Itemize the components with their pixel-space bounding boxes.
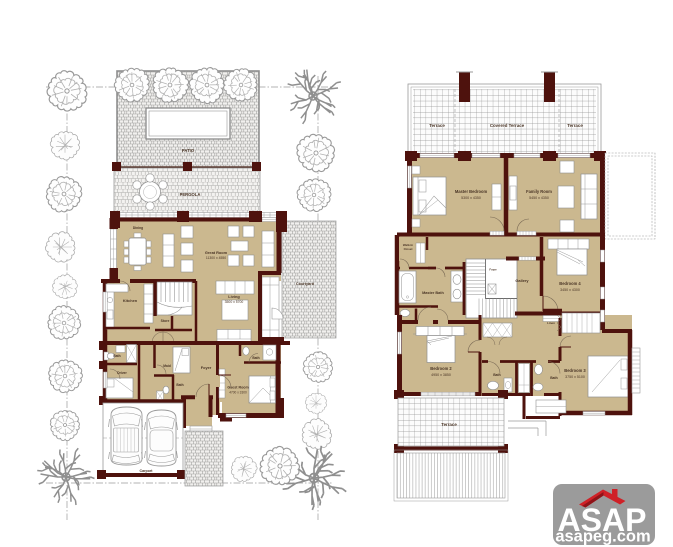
svg-text:PERGOLA: PERGOLA (180, 192, 201, 197)
svg-text:Guest Room: Guest Room (227, 386, 248, 390)
svg-text:Terrace: Terrace (441, 422, 457, 427)
svg-text:Carport: Carport (140, 469, 154, 473)
svg-text:4700 x 3300: 4700 x 3300 (229, 391, 247, 395)
svg-text:Family Room: Family Room (526, 189, 552, 194)
svg-text:3450 x 4300: 3450 x 4300 (560, 288, 580, 292)
svg-text:Bedroom 2: Bedroom 2 (430, 366, 452, 371)
svg-text:Terrace: Terrace (429, 123, 445, 128)
svg-text:asapeg.com: asapeg.com (555, 528, 650, 546)
svg-text:Bath: Bath (176, 383, 183, 387)
svg-text:Foyer: Foyer (489, 268, 496, 272)
svg-text:Store: Store (161, 319, 170, 323)
svg-text:Closet: Closet (404, 247, 413, 251)
svg-text:Driver: Driver (117, 371, 127, 375)
svg-text:4950 x 3850: 4950 x 3850 (431, 373, 451, 377)
svg-text:Covered Terrace: Covered Terrace (490, 123, 525, 128)
svg-text:3750 x 5100: 3750 x 5100 (565, 375, 585, 379)
svg-text:PATIO: PATIO (182, 148, 195, 153)
svg-text:Foyer: Foyer (201, 365, 212, 370)
svg-text:11300 x 4550: 11300 x 4550 (206, 256, 226, 260)
svg-text:Bedroom 4: Bedroom 4 (559, 281, 581, 286)
svg-text:Courtyard: Courtyard (296, 282, 315, 286)
svg-text:3500 x 5700: 3500 x 5700 (225, 300, 244, 304)
svg-text:Dining: Dining (133, 226, 143, 230)
svg-text:5300 x 4350: 5300 x 4350 (461, 196, 481, 200)
svg-text:Living: Living (228, 294, 240, 299)
svg-text:Maid: Maid (163, 364, 171, 368)
svg-text:Bath: Bath (113, 354, 120, 358)
svg-text:Bath: Bath (493, 373, 501, 377)
svg-text:Bath: Bath (550, 376, 558, 380)
svg-text:Master Bedroom: Master Bedroom (455, 189, 488, 194)
svg-text:Gallery: Gallery (515, 278, 529, 283)
svg-text:Great Room: Great Room (205, 250, 228, 255)
svg-text:Kitchen: Kitchen (123, 298, 138, 303)
svg-text:Bath: Bath (252, 356, 259, 360)
svg-text:Terrace: Terrace (567, 123, 583, 128)
svg-text:Bedroom 3: Bedroom 3 (564, 368, 586, 373)
svg-text:Master Bath: Master Bath (422, 291, 444, 295)
svg-text:5450 x 4350: 5450 x 4350 (529, 196, 549, 200)
